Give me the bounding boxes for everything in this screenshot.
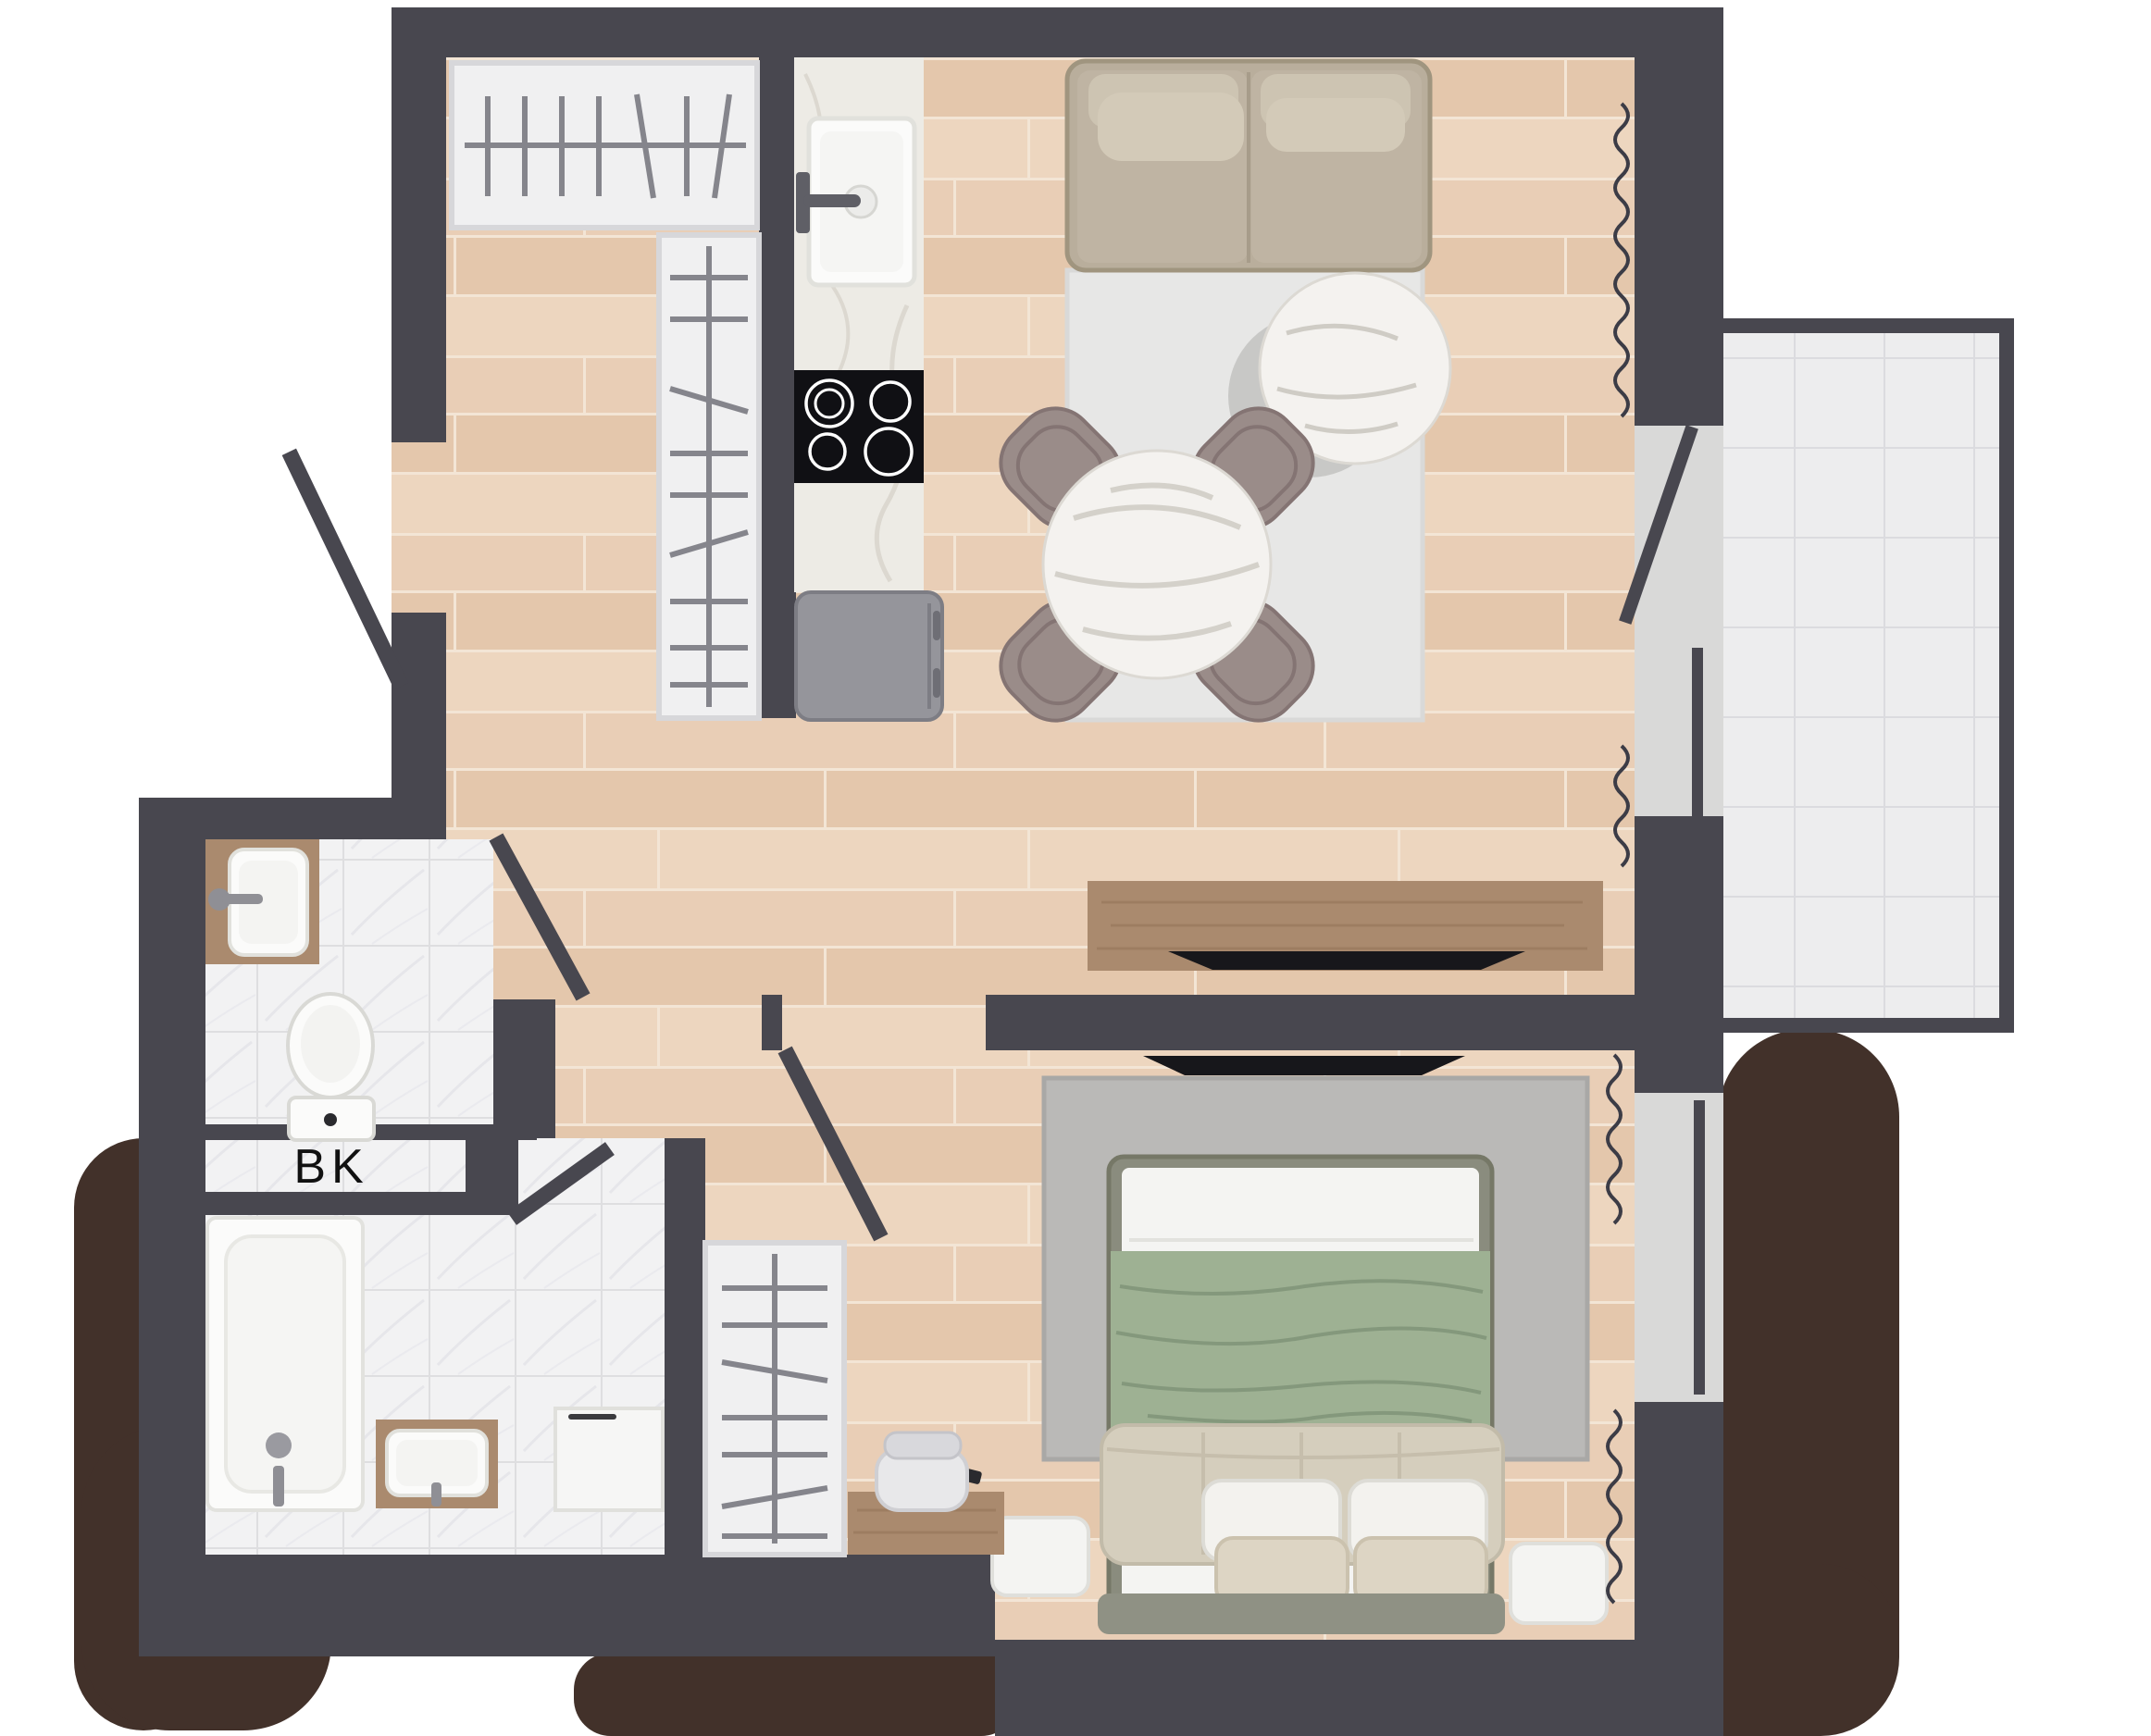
wall-kitchen-core [759, 57, 796, 718]
wall-wc-east [493, 999, 555, 1138]
nightstand [1511, 1544, 1607, 1623]
door-entrance [292, 459, 398, 679]
wall-bath-east [665, 1138, 705, 1555]
tall-wardrobe [659, 235, 759, 718]
entry-wardrobe [452, 63, 757, 228]
wall-right-upper [1635, 7, 1723, 426]
wall-partition-bedroom [986, 995, 1635, 1050]
wall-left-mid [392, 613, 446, 805]
wall-balcony-right [1999, 318, 2014, 1033]
wall-balcony-bottom [1723, 1018, 2014, 1033]
tv [1143, 1056, 1465, 1075]
sideboard [1088, 881, 1603, 971]
toilet [288, 994, 374, 1140]
wall-bath-door-stub [493, 1124, 537, 1140]
desk-chair [877, 1432, 967, 1510]
wall-balcony-top [1723, 318, 2014, 333]
faucet-icon [431, 1482, 441, 1507]
wall-left-upper [392, 7, 446, 442]
wall-right-lower [1635, 1402, 1723, 1736]
cooktop [794, 370, 924, 483]
refrigerator [796, 592, 942, 720]
wall-partition-stub [762, 995, 782, 1050]
window-glass-balcony-panel [1692, 648, 1703, 816]
wall-right-mid [1635, 816, 1723, 1093]
wc-vanity [205, 839, 319, 964]
storage-closet-label: BK [293, 1140, 368, 1194]
wall-top [392, 7, 1723, 57]
nightstand [992, 1518, 1088, 1595]
faucet-icon [273, 1466, 284, 1507]
wall-left-lower [139, 798, 205, 1656]
wall-bk-east [466, 1140, 518, 1192]
headboard [1098, 1593, 1505, 1634]
sofa-pillow [1266, 98, 1405, 152]
wall-bk-bath [205, 1192, 518, 1215]
floor-plan: BK [0, 0, 2151, 1736]
wall-bottom-west [139, 1555, 995, 1656]
blanket [1111, 1251, 1490, 1442]
washing-machine [555, 1408, 663, 1510]
tv [1168, 951, 1525, 970]
window-glass-bedroom [1694, 1100, 1705, 1395]
bedroom-window-sill [1635, 1093, 1723, 1402]
bathtub-drain [266, 1432, 292, 1458]
kitchen-sink [796, 118, 914, 285]
bed [1098, 1157, 1505, 1634]
wall-bottom-bedroom [995, 1640, 1723, 1736]
sofa-pillow [1098, 93, 1244, 161]
balcony-floor [1723, 333, 1999, 1018]
bathroom-vanity [376, 1420, 498, 1508]
bedroom-wardrobe [705, 1243, 844, 1555]
sofa [1067, 61, 1430, 270]
bathtub [207, 1218, 363, 1510]
